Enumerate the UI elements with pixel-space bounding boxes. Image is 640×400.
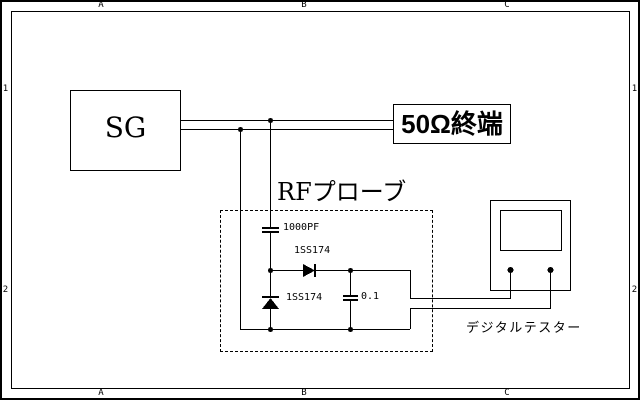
grid-col-b-top: B: [294, 0, 314, 10]
tester-label: デジタルテスター: [466, 320, 582, 335]
grid-row-1-left: 1: [1, 84, 10, 94]
grid-row-1-right: 1: [630, 84, 639, 94]
tester-display: [500, 210, 562, 251]
grid-row-2-left: 2: [1, 285, 10, 295]
termination-box: 50Ω終端: [393, 104, 511, 144]
coupling-capacitor-label: 1000PF: [283, 222, 319, 233]
series-diode-label: 1SS174: [294, 245, 330, 256]
grid-row-2-right: 2: [630, 285, 639, 295]
termination-label: 50Ω終端: [401, 111, 503, 137]
rf-probe-title: RFプローブ: [277, 180, 406, 205]
signal-generator-box: SG: [70, 90, 181, 171]
schematic-page: A B C A B C 1 2 1 2 SG 50Ω終端 RFプローブ 1000…: [0, 0, 640, 400]
grid-col-c-top: C: [497, 0, 517, 10]
grid-col-b-bottom: B: [294, 388, 314, 398]
rf-probe-dashed-box: [220, 210, 433, 352]
grid-col-a-top: A: [91, 0, 111, 10]
shunt-diode-label: 1SS174: [286, 292, 322, 303]
grid-col-a-bottom: A: [91, 388, 111, 398]
filter-capacitor-label: 0.1: [361, 291, 379, 302]
signal-generator-label: SG: [105, 114, 147, 142]
grid-col-c-bottom: C: [497, 388, 517, 398]
